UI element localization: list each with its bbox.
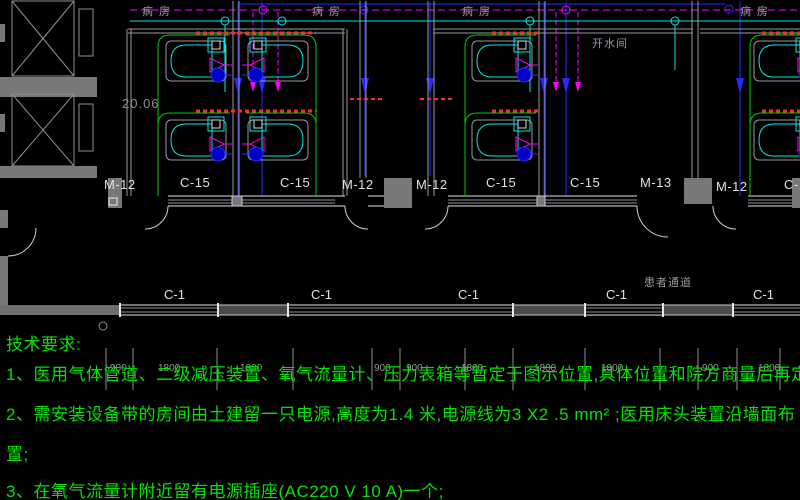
utility-room-label: 开水间 [592,39,628,50]
opening-label: M-12 [342,178,374,191]
opening-label: C-15 [280,176,310,189]
ward-label: 病房 [740,7,774,18]
corridor-window-label: C-1 [753,288,774,301]
notes-title: 技术要求: [6,330,800,355]
patient-beds [166,38,800,161]
corridor-label: 患者通道 [644,278,692,289]
room-outlines [158,35,800,196]
ward-label: 病房 [462,7,496,18]
cad-floor-plan: 病房 病房 病房 病房 开水间 20.06 患者通道 M-12 C-15 C-1… [0,0,800,500]
corridor-wall [0,303,800,317]
corridor-window-label: C-1 [606,288,627,301]
elevator-shafts [0,1,97,306]
notes-line-3: 3、在氧气流量计附近留有电源插座(AC220 V 10 A)一个; [6,477,800,500]
opening-label: C-15 [784,178,800,191]
opening-label: M-12 [716,180,748,193]
notes-line-2-continued: 置; [6,440,800,465]
opening-label: M-12 [104,178,136,191]
corridor-window-label: C-1 [164,288,185,301]
opening-label: C-15 [486,176,516,189]
opening-label: M-12 [416,178,448,191]
door-swing-arcs [8,206,736,256]
corridor-window-label: C-1 [311,288,332,301]
notes-line-1: 1、医用气体管道、二级减压装置、氧气流量计、压力表箱等暂定于图示位置,具体位置和… [6,360,800,385]
opening-label: M-13 [640,176,672,189]
ward-label: 病房 [312,7,346,18]
corridor-window-label: C-1 [458,288,479,301]
notes-line-2: 2、需安装设备带的房间由土建留一只电源,高度为1.4 米,电源线为3 X2 .5… [6,400,800,425]
elevation-marker: 20.06 [122,97,160,110]
ward-label: 病房 [142,7,176,18]
opening-label: C-15 [570,176,600,189]
opening-label: C-15 [180,176,210,189]
floor-plan-drawing [0,0,800,500]
